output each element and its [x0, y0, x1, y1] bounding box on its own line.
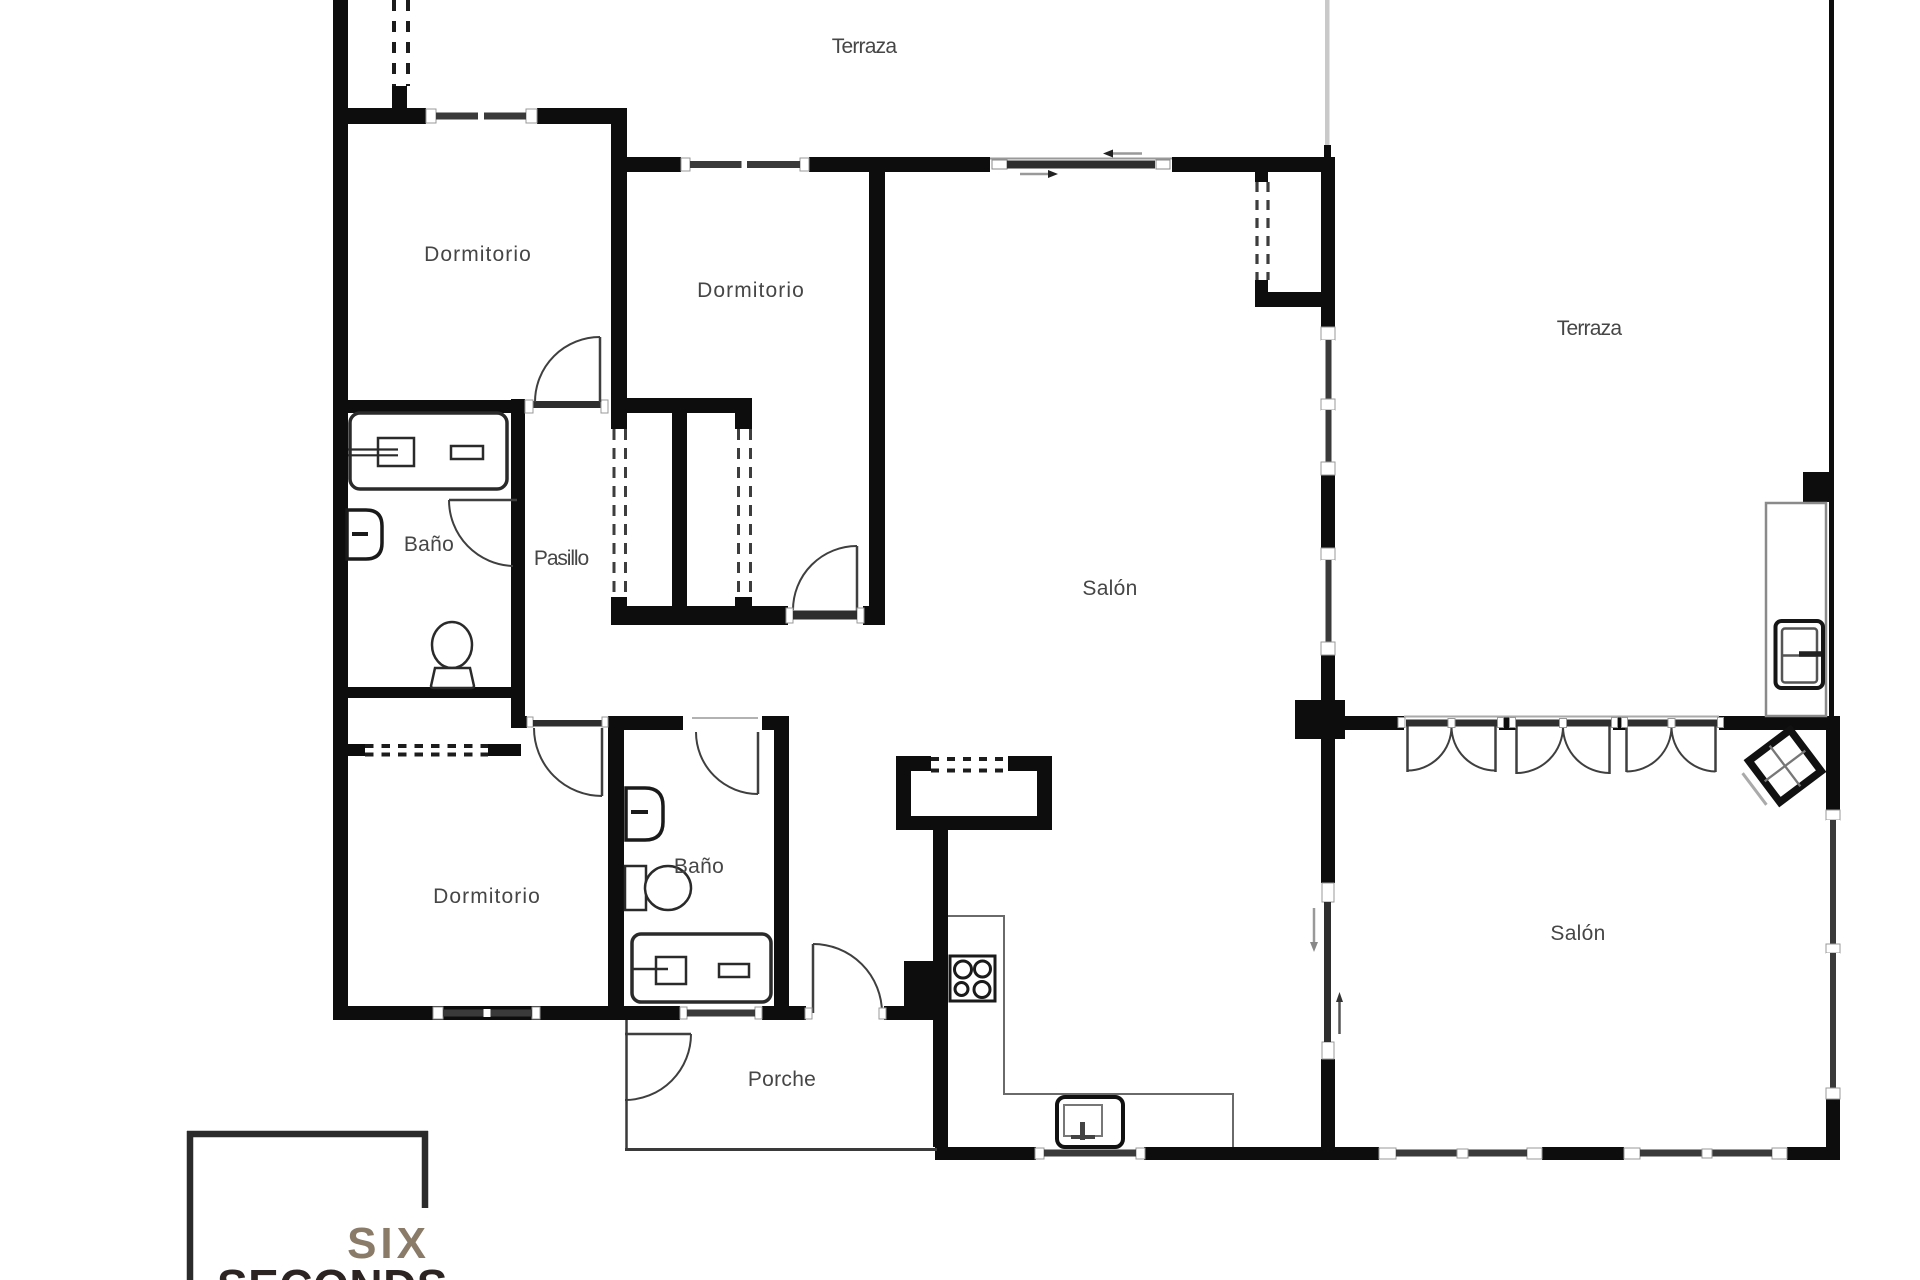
- svg-text:Terraza: Terraza: [832, 35, 898, 58]
- svg-text:Pasillo: Pasillo: [534, 547, 589, 570]
- svg-text:Salón: Salón: [1082, 577, 1137, 600]
- svg-text:Dormitorio: Dormitorio: [433, 885, 541, 908]
- svg-text:Salón: Salón: [1550, 922, 1605, 945]
- svg-text:Porche: Porche: [748, 1068, 816, 1091]
- svg-text:Dormitorio: Dormitorio: [697, 279, 805, 302]
- svg-text:Dormitorio: Dormitorio: [424, 243, 532, 266]
- svg-text:SECONDS: SECONDS: [217, 1260, 448, 1280]
- svg-text:Baño: Baño: [404, 533, 454, 556]
- svg-text:Baño: Baño: [674, 855, 724, 878]
- svg-text:Terraza: Terraza: [1557, 317, 1623, 340]
